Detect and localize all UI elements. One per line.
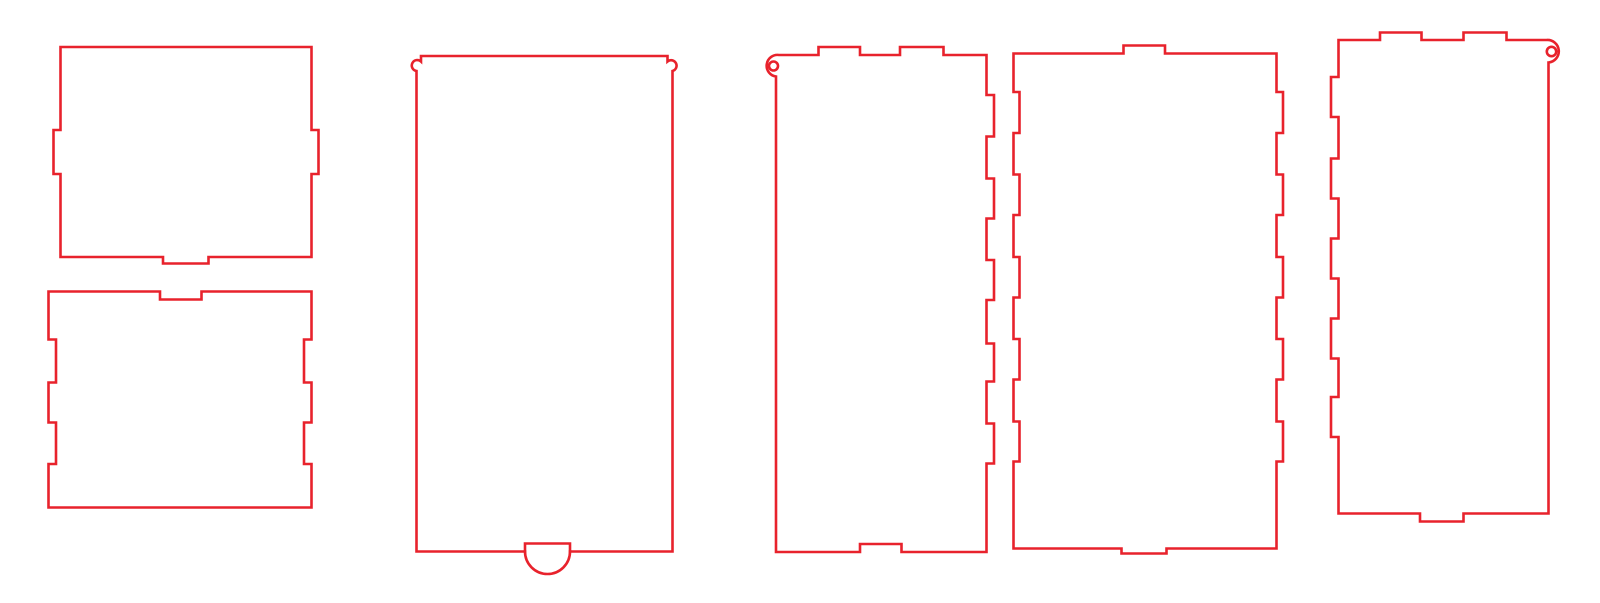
panel-side-b [1331,33,1559,522]
panel-side-b-hanging-hole [1547,47,1556,56]
panel-sliding-lid-panel-outline [412,56,677,552]
panel-back [1014,46,1284,554]
panel-back-panel-outline [1014,46,1284,554]
panel-side-b-panel-outline [1331,33,1559,522]
panel-bottom-small-panel-outline [49,292,312,508]
panel-sliding-lid [412,56,677,574]
laser-cut-template-canvas [0,0,1600,603]
panel-side-a-panel-outline [767,47,994,552]
panel-bottom-small [49,292,312,508]
cut-layout-svg [0,0,1600,603]
panel-side-a-hanging-hole [769,62,778,71]
panel-top-small [54,47,319,264]
panel-sliding-lid-finger-pull-arc [525,552,570,575]
panel-side-a [767,47,994,552]
panel-top-small-panel-outline [54,47,319,264]
